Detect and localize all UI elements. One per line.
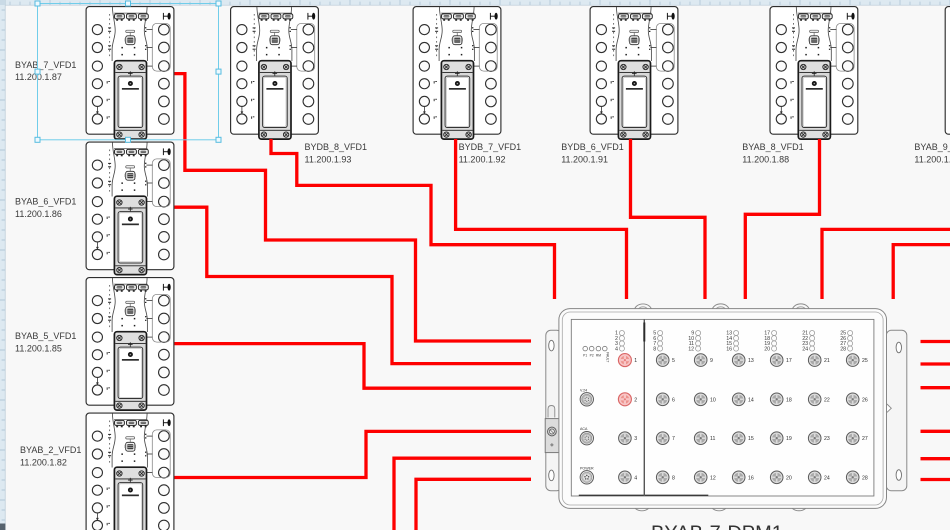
svg-text:BYAB_9_VFD1: BYAB_9_VFD1: [914, 142, 950, 152]
svg-text:BYAB_7_VFD1: BYAB_7_VFD1: [15, 60, 76, 70]
svg-text:12: 12: [710, 475, 716, 481]
svg-text:BYAB-7-DPM1: BYAB-7-DPM1: [651, 523, 783, 530]
svg-text:P2: P2: [590, 353, 594, 357]
svg-text:20: 20: [786, 475, 792, 481]
svg-text:8: 8: [653, 346, 656, 352]
svg-text:21: 21: [824, 358, 830, 364]
svg-text:BYDB_7_VFD1: BYDB_7_VFD1: [459, 142, 522, 152]
svg-text:4: 4: [615, 346, 618, 352]
svg-text:RM: RM: [596, 353, 601, 357]
svg-text:24: 24: [824, 475, 830, 481]
svg-text:12: 12: [688, 346, 694, 352]
svg-text:16: 16: [726, 346, 732, 352]
svg-text:1: 1: [634, 358, 637, 364]
svg-text:11: 11: [710, 436, 715, 442]
svg-text:23: 23: [824, 436, 830, 442]
svg-text:ACA: ACA: [580, 427, 588, 431]
svg-text:BYDB_8_VFD1: BYDB_8_VFD1: [305, 142, 368, 152]
svg-text:3: 3: [634, 436, 637, 442]
svg-text:BYAB_5_VFD1: BYAB_5_VFD1: [15, 331, 76, 341]
svg-text:BYAB_2_VFD1: BYAB_2_VFD1: [20, 445, 81, 455]
svg-text:2: 2: [634, 397, 637, 403]
svg-text:18: 18: [786, 397, 792, 403]
svg-text:BYAB_8_VFD1: BYAB_8_VFD1: [742, 142, 803, 152]
svg-text:11.200.1.82: 11.200.1.82: [20, 458, 67, 468]
svg-text:13: 13: [748, 358, 754, 364]
svg-text:6: 6: [672, 397, 675, 403]
svg-text:5: 5: [672, 358, 675, 364]
svg-text:16: 16: [748, 475, 754, 481]
svg-text:24: 24: [802, 346, 808, 352]
svg-text:11.200.1.88: 11.200.1.88: [742, 155, 789, 165]
svg-text:22: 22: [824, 397, 830, 403]
svg-text:BYAB_6_VFD1: BYAB_6_VFD1: [15, 197, 76, 207]
svg-text:28: 28: [862, 475, 868, 481]
svg-text:11.200.1.93: 11.200.1.93: [305, 155, 352, 165]
svg-text:9: 9: [710, 358, 713, 364]
svg-text:11.200.1.86: 11.200.1.86: [15, 209, 62, 219]
svg-text:11.200.1.91: 11.200.1.91: [561, 155, 608, 165]
svg-text:POWER: POWER: [580, 466, 594, 470]
svg-text:11.200.1.89: 11.200.1.89: [914, 155, 950, 165]
svg-text:19: 19: [786, 436, 792, 442]
svg-text:17: 17: [786, 358, 792, 364]
svg-text:8: 8: [672, 475, 675, 481]
svg-text:BYDB_6_VFD1: BYDB_6_VFD1: [561, 142, 624, 152]
svg-text:FAULT: FAULT: [605, 352, 609, 362]
svg-text:20: 20: [764, 346, 770, 352]
svg-text:7: 7: [672, 436, 675, 442]
svg-text:P1: P1: [583, 353, 587, 357]
svg-text:27: 27: [862, 436, 868, 442]
svg-text:11.200.1.85: 11.200.1.85: [15, 344, 62, 354]
svg-text:25: 25: [862, 358, 868, 364]
svg-text:26: 26: [862, 397, 868, 403]
svg-text:14: 14: [748, 397, 754, 403]
svg-text:11.200.1.92: 11.200.1.92: [459, 155, 506, 165]
svg-text:28: 28: [840, 346, 846, 352]
svg-text:4: 4: [634, 475, 637, 481]
svg-text:V.24: V.24: [580, 388, 587, 392]
svg-text:15: 15: [748, 436, 754, 442]
svg-text:10: 10: [710, 397, 716, 403]
